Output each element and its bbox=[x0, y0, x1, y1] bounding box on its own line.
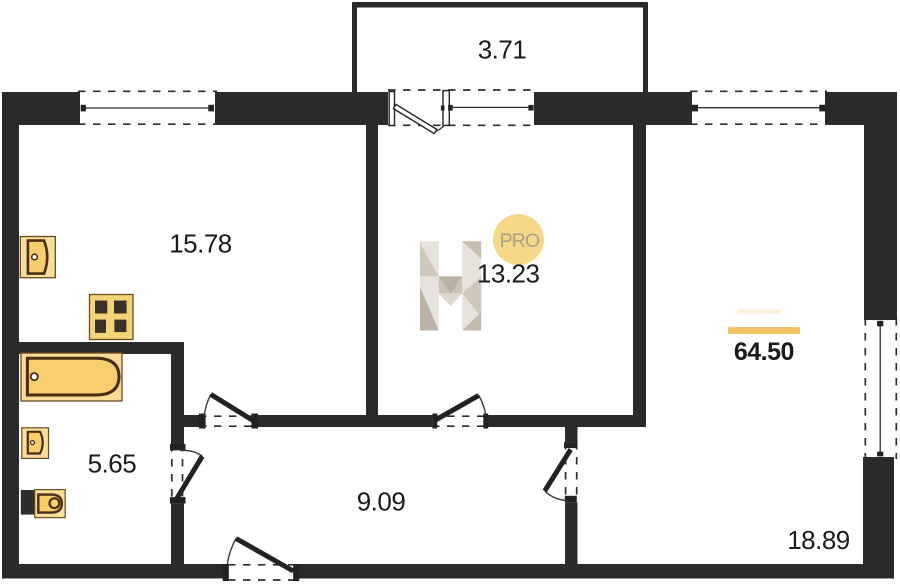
svg-text:9.09: 9.09 bbox=[357, 487, 406, 517]
svg-text:3.71: 3.71 bbox=[478, 35, 527, 65]
svg-text:18.89: 18.89 bbox=[787, 525, 850, 555]
svg-text:13.23: 13.23 bbox=[477, 259, 540, 289]
svg-text:64.50: 64.50 bbox=[734, 338, 794, 366]
svg-text:PRO: PRO bbox=[500, 230, 540, 252]
svg-text:15.78: 15.78 bbox=[169, 228, 232, 258]
svg-text:5.65: 5.65 bbox=[88, 449, 137, 479]
